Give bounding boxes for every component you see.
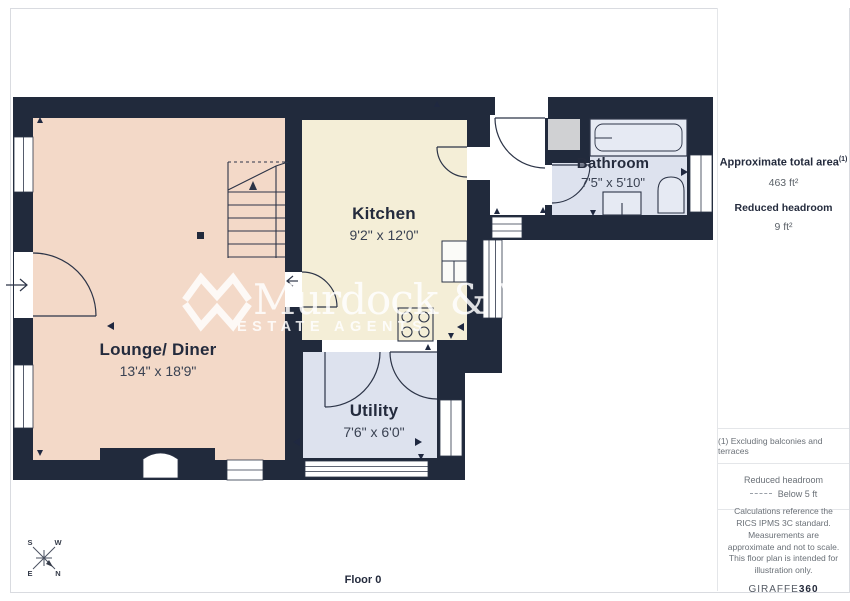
- sidebar-note-section: (1) Excluding balconies and terraces: [718, 429, 849, 464]
- compass: S W E N: [27, 538, 62, 578]
- utility-opening: [322, 340, 437, 352]
- disclaimer-text: Calculations reference the RICS IPMS 3C …: [718, 506, 849, 577]
- fireplace-alcove: [143, 453, 178, 478]
- reduced-headroom-label: Reduced headroom: [718, 202, 849, 214]
- window: [440, 400, 462, 456]
- legend-title: Reduced headroom: [744, 475, 823, 485]
- room-label-bathroom: Bathroom 7'5" x 5'10": [577, 155, 649, 190]
- window: [305, 461, 428, 477]
- legend-item-label: Below 5 ft: [778, 489, 818, 499]
- room-lounge-floor: [33, 118, 285, 460]
- sidebar-area-section: Approximate total area(1) 463 ft² Reduce…: [718, 8, 849, 429]
- hallway-floor: [490, 115, 545, 215]
- total-area-label: Approximate total area(1): [718, 156, 849, 169]
- room-label-kitchen: Kitchen 9'2" x 12'0": [350, 204, 419, 243]
- hall-cupboard: [548, 119, 580, 150]
- bathroom-sink: [603, 192, 641, 215]
- legend-row: Below 5 ft: [750, 489, 818, 499]
- window: [14, 365, 33, 428]
- brand-logo: GIRAFFE360: [748, 584, 818, 595]
- total-area-value: 463 ft²: [718, 177, 849, 189]
- watermark-agency-name: Murdock & Wasp: [253, 275, 607, 324]
- reduced-headroom-value: 9 ft²: [718, 221, 849, 233]
- watermark-tagline: ESTATE AGENTS: [237, 319, 427, 335]
- room-dimensions: 7'5" x 5'10": [577, 175, 649, 190]
- room-dimensions: 9'2" x 12'0": [350, 227, 419, 243]
- window: [690, 155, 712, 212]
- compass-s: S: [27, 538, 32, 547]
- total-area-label-text: Approximate total area: [720, 157, 839, 169]
- room-label-lounge: Lounge/ Diner 13'4" x 18'9": [100, 340, 217, 379]
- total-area-footnote-mark: (1): [839, 156, 848, 163]
- room-name: Kitchen: [350, 204, 419, 224]
- brand-suffix: 360: [799, 584, 819, 595]
- kitchen-door-opening: [467, 147, 490, 180]
- floor-label: Floor 0: [345, 574, 382, 586]
- window: [492, 217, 522, 238]
- compass-n: N: [55, 569, 60, 578]
- sidebar-disclaimer-section: Calculations reference the RICS IPMS 3C …: [718, 510, 849, 591]
- footnote-text: (1) Excluding balconies and terraces: [718, 436, 849, 456]
- window: [227, 460, 263, 480]
- room-name: Bathroom: [577, 155, 649, 172]
- toilet: [658, 177, 684, 213]
- dashed-line-swatch: [750, 493, 772, 494]
- bathtub: [590, 119, 687, 156]
- sidebar-legend-section: Reduced headroom Below 5 ft: [718, 464, 849, 510]
- bathroom-door-opening: [545, 165, 552, 205]
- room-label-utility: Utility 7'6" x 6'0": [343, 401, 404, 440]
- room-dimensions: 13'4" x 18'9": [100, 363, 217, 379]
- compass-e: E: [27, 569, 32, 578]
- brand-name: GIRAFFE: [748, 584, 798, 595]
- structural-post: [197, 232, 204, 239]
- room-name: Lounge/ Diner: [100, 340, 217, 360]
- room-name: Utility: [343, 401, 404, 421]
- kitchen-chimney-recess: [385, 130, 417, 142]
- compass-w: W: [54, 538, 62, 547]
- room-dimensions: 7'6" x 6'0": [343, 424, 404, 440]
- info-sidebar: Approximate total area(1) 463 ft² Reduce…: [717, 8, 849, 591]
- window: [14, 137, 33, 192]
- hall-door-opening: [495, 97, 548, 118]
